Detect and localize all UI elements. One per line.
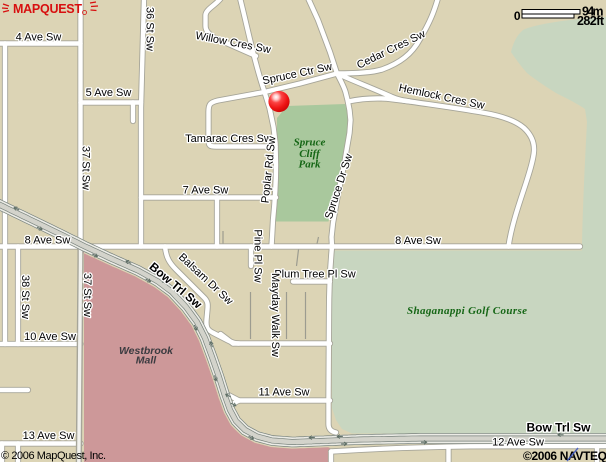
svg-text:0: 0 — [514, 9, 521, 23]
svg-text:Park: Park — [299, 159, 322, 171]
svg-text:38 St Sw: 38 St Sw — [19, 275, 31, 319]
svg-text:37 St Sw: 37 St Sw — [81, 273, 93, 317]
svg-text:Mall: Mall — [136, 355, 158, 367]
svg-text:5 Ave Sw: 5 Ave Sw — [86, 87, 132, 99]
svg-text:13 Ave Sw: 13 Ave Sw — [23, 430, 75, 442]
svg-text:8 Ave Sw: 8 Ave Sw — [395, 235, 441, 247]
svg-text:37 St Sw: 37 St Sw — [80, 146, 92, 190]
svg-text:4 Ave Sw: 4 Ave Sw — [16, 32, 62, 44]
svg-text:282ft: 282ft — [577, 14, 605, 28]
svg-text:Plum Tree Pl Sw: Plum Tree Pl Sw — [274, 269, 355, 281]
svg-text:Tamarac Cres Sw: Tamarac Cres Sw — [185, 133, 272, 145]
svg-text:36 St Sw: 36 St Sw — [144, 7, 156, 51]
svg-text:Pine Pl Sw: Pine Pl Sw — [252, 229, 264, 282]
svg-text:Spruce: Spruce — [294, 137, 326, 149]
svg-text:12 Ave Sw: 12 Ave Sw — [492, 437, 544, 449]
svg-text:Bow Trl Sw: Bow Trl Sw — [526, 421, 591, 435]
svg-text:©2006 NAVTEQ: ©2006 NAVTEQ — [523, 449, 606, 462]
svg-text:Mayday Walk Sw: Mayday Walk Sw — [269, 273, 281, 357]
svg-text:10 Ave Sw: 10 Ave Sw — [24, 331, 76, 343]
svg-text:11 Ave Sw: 11 Ave Sw — [259, 387, 310, 399]
svg-text:Shaganappi Golf Course: Shaganappi Golf Course — [407, 305, 527, 317]
svg-text:7 Ave Sw: 7 Ave Sw — [183, 185, 229, 197]
svg-text:8 Ave Sw: 8 Ave Sw — [25, 235, 71, 247]
svg-text:MAPQUEST: MAPQUEST — [13, 2, 82, 16]
svg-text:© 2006 MapQuest, Inc.: © 2006 MapQuest, Inc. — [1, 450, 106, 462]
